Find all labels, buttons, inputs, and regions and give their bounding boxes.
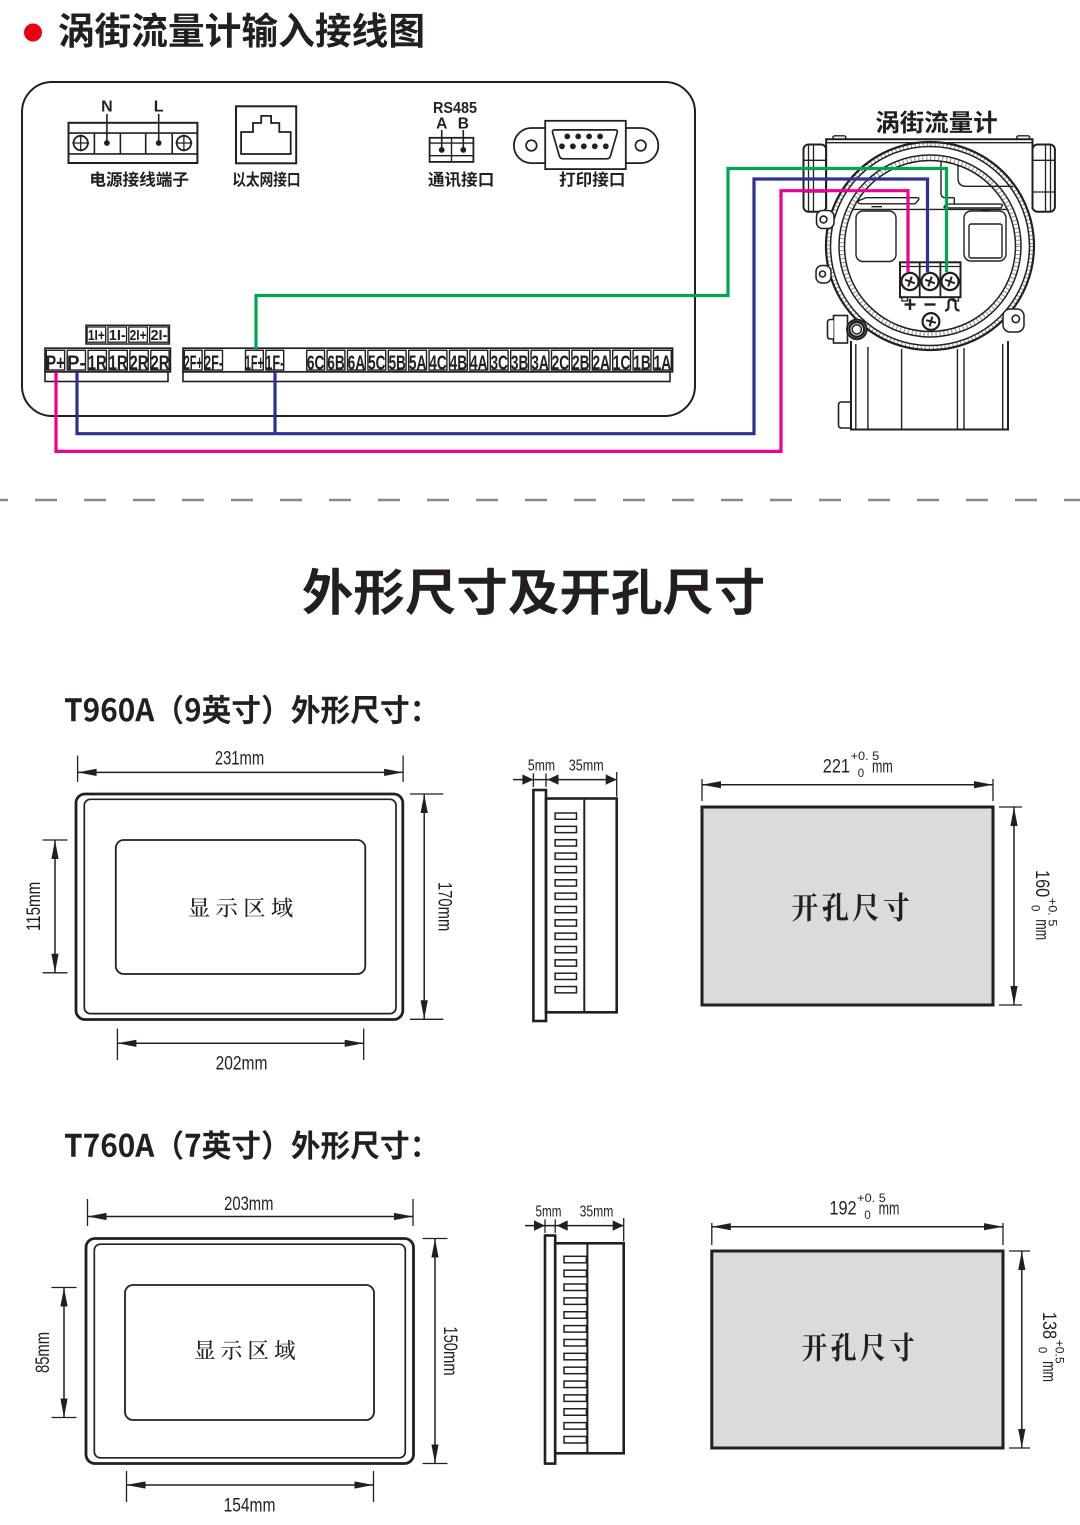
svg-text:P-: P- (67, 351, 86, 374)
svg-text:RS485: RS485 (433, 100, 477, 117)
svg-text:2A: 2A (592, 351, 610, 374)
svg-text:1F+: 1F+ (245, 351, 264, 374)
svg-text:203mm: 203mm (224, 1194, 273, 1215)
svg-text:1C: 1C (613, 351, 631, 374)
svg-text:A: A (436, 116, 447, 133)
svg-text:1I+: 1I+ (88, 327, 105, 344)
svg-text:2F-: 2F- (204, 351, 223, 374)
svg-text:35mm: 35mm (569, 758, 604, 775)
svg-text:0: 0 (1029, 905, 1041, 911)
svg-text:2R: 2R (150, 351, 169, 374)
svg-text:6B: 6B (327, 351, 345, 374)
svg-text:P+: P+ (46, 351, 65, 374)
svg-text:35mm: 35mm (580, 1204, 614, 1221)
svg-text:3B: 3B (511, 351, 529, 374)
svg-text:5A: 5A (409, 351, 427, 374)
svg-text:1A: 1A (654, 351, 672, 374)
svg-text:5mm: 5mm (536, 1204, 562, 1221)
svg-text:2B: 2B (572, 351, 590, 374)
svg-text:mm: mm (872, 755, 893, 776)
svg-text:mm: mm (1032, 919, 1053, 940)
svg-text:170mm: 170mm (434, 882, 455, 931)
svg-text:+0.5: +0.5 (1052, 1340, 1064, 1364)
svg-text:1F-: 1F- (265, 351, 284, 374)
svg-text:mm: mm (879, 1198, 900, 1219)
svg-text:192: 192 (829, 1199, 856, 1220)
svg-text:N: N (101, 99, 113, 116)
svg-text:4C: 4C (429, 351, 447, 374)
svg-text:6A: 6A (348, 351, 366, 374)
svg-text:0: 0 (1036, 1347, 1048, 1353)
svg-text:3A: 3A (531, 351, 549, 374)
svg-text:0: 0 (858, 768, 864, 780)
svg-text:1R: 1R (109, 351, 128, 374)
svg-text:2F+: 2F+ (184, 351, 203, 374)
svg-text:6C: 6C (307, 351, 325, 374)
svg-text:1I-: 1I- (109, 327, 126, 344)
svg-text:mm: mm (1039, 1361, 1060, 1382)
svg-text:5mm: 5mm (528, 758, 555, 775)
svg-text:L: L (154, 99, 164, 116)
svg-text:2C: 2C (552, 351, 570, 374)
svg-text:154mm: 154mm (224, 1496, 276, 1517)
svg-text:5C: 5C (368, 351, 386, 374)
svg-text:202mm: 202mm (216, 1053, 268, 1074)
svg-text:4B: 4B (450, 351, 468, 374)
svg-text:160: 160 (1031, 870, 1052, 897)
svg-text:2I+: 2I+ (130, 327, 147, 344)
svg-text:0: 0 (864, 1210, 870, 1222)
svg-text:221: 221 (823, 756, 850, 777)
svg-text:138: 138 (1038, 1312, 1059, 1339)
svg-text:85mm: 85mm (33, 1332, 54, 1373)
svg-text:115mm: 115mm (24, 882, 45, 931)
svg-text:4A: 4A (470, 351, 488, 374)
svg-text:150mm: 150mm (439, 1326, 460, 1375)
svg-text:3C: 3C (490, 351, 508, 374)
svg-text:1R: 1R (88, 351, 107, 374)
svg-text:231mm: 231mm (215, 749, 264, 770)
svg-text:1B: 1B (633, 351, 651, 374)
svg-text:2R: 2R (130, 351, 149, 374)
svg-text:2I-: 2I- (150, 327, 167, 344)
svg-text:B: B (458, 116, 469, 133)
svg-text:5B: 5B (388, 351, 406, 374)
